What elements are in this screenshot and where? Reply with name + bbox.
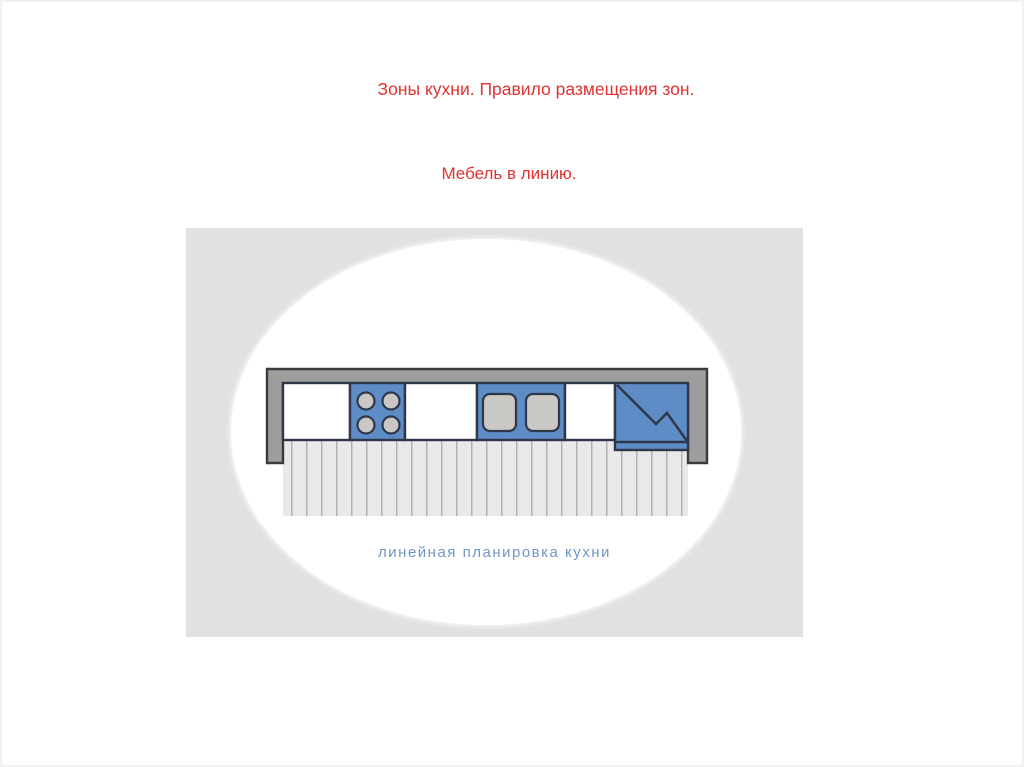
floor-hatch-pattern xyxy=(283,440,688,516)
cabinet-counter-2 xyxy=(405,383,477,440)
slide-title: Зоны кухни. Правило размещения зон. xyxy=(378,79,695,100)
slide-subtitle: Мебель в линию. xyxy=(441,164,576,184)
cabinet-counter-1 xyxy=(283,383,350,440)
kitchen-figure: линейная планировка кухни xyxy=(186,228,803,637)
kitchen-plan-diagram xyxy=(186,228,803,637)
cabinet-counter-3 xyxy=(565,383,615,440)
presentation-slide: Зоны кухни. Правило размещения зон. Мебе… xyxy=(0,0,1024,767)
figure-caption: линейная планировка кухни xyxy=(186,544,803,561)
